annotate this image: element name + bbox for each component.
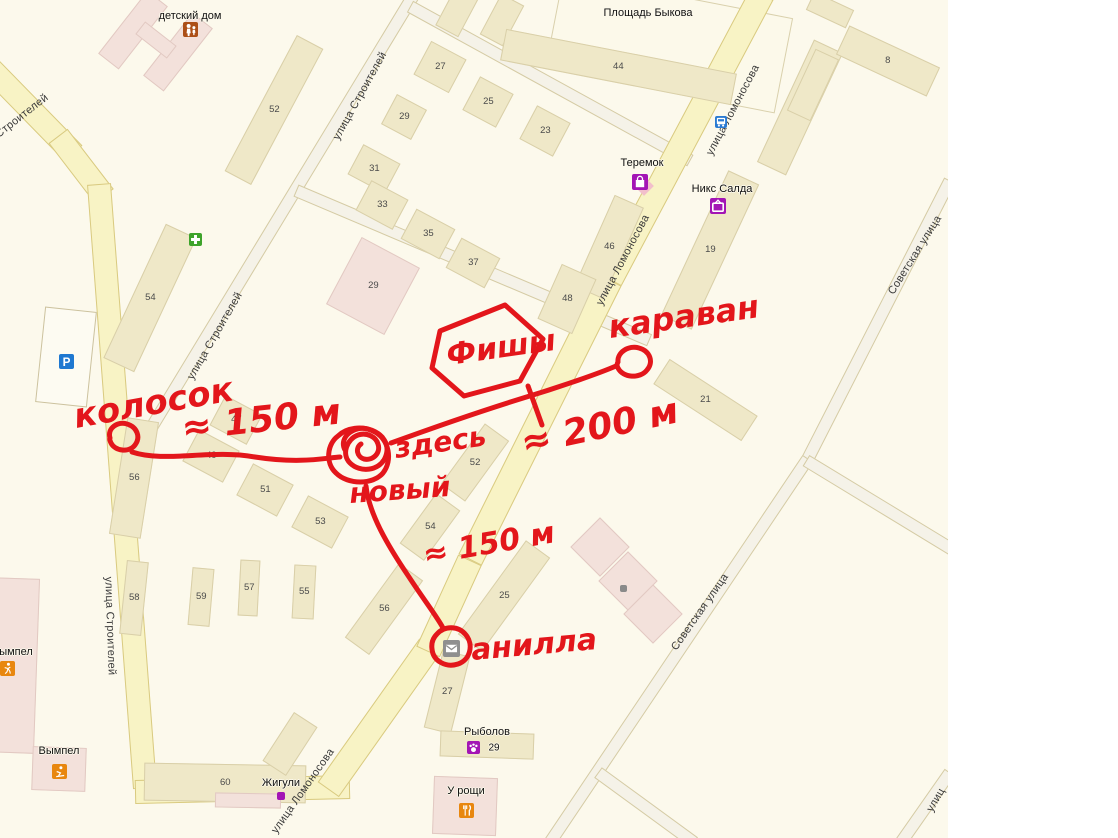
building-number: 59 — [196, 592, 207, 602]
building — [806, 0, 854, 28]
building-number: 56 — [129, 473, 140, 483]
building-number: 27 — [435, 62, 446, 72]
place-label: ымпел — [0, 646, 33, 658]
building-number: 33 — [377, 200, 388, 210]
place-label: 29 — [488, 743, 499, 754]
building-number: 57 — [244, 583, 255, 593]
building — [215, 792, 281, 808]
road-segment — [803, 454, 958, 555]
map-canvas: колосок≈ 150 мФишыкараван≈ 200 мздесьнов… — [0, 0, 1118, 838]
runner-icon — [0, 661, 15, 676]
building-49: 49 — [182, 429, 240, 482]
bag-icon — [632, 174, 648, 190]
building-number: 29 — [399, 112, 410, 122]
building-59: 59 — [188, 567, 215, 627]
parking-icon: P — [59, 354, 74, 369]
road-segment — [896, 768, 956, 838]
place-label: Вымпел — [39, 745, 80, 757]
building-number: 21 — [700, 395, 711, 405]
building-number: 54 — [425, 522, 436, 532]
building-number: 51 — [260, 485, 271, 495]
building-number: 52 — [269, 105, 280, 115]
plus-icon — [189, 233, 202, 246]
building-23: 23 — [519, 105, 570, 156]
building-number: 8 — [885, 56, 890, 66]
building-number: 29 — [368, 281, 379, 291]
street-label: Советская улица — [886, 213, 944, 296]
svg-text:P: P — [62, 356, 70, 369]
road-segment — [594, 767, 698, 838]
building-number: 52 — [470, 457, 481, 467]
building-number: 54 — [145, 293, 156, 303]
building-51: 51 — [236, 463, 294, 516]
tv-icon — [710, 198, 726, 214]
building-number: 58 — [129, 593, 140, 603]
family-icon — [183, 22, 198, 37]
road-segment — [317, 638, 440, 797]
red-drawn-stroke — [391, 366, 616, 443]
building-number: 55 — [299, 587, 310, 597]
building — [262, 712, 317, 776]
building-57: 57 — [238, 560, 261, 617]
red-drawn-stroke — [343, 428, 387, 469]
building-number: 53 — [315, 517, 326, 527]
building-number: 35 — [423, 229, 434, 239]
building-number: 23 — [540, 126, 551, 136]
building-number: 25 — [499, 591, 510, 601]
red-drawn-stroke — [617, 347, 650, 376]
place-label: Рыболов — [464, 726, 510, 738]
street-label: улица Строителей — [331, 50, 389, 142]
street-label: улица Строителей — [185, 290, 245, 382]
place-label: Никс Салда — [692, 183, 753, 195]
building-56: 56 — [345, 563, 423, 655]
building-number: 25 — [483, 97, 494, 107]
dot-icon — [620, 585, 627, 592]
building-number: 27 — [442, 687, 453, 697]
building-29: 29 — [326, 237, 420, 335]
building-25: 25 — [462, 76, 513, 127]
street-label: улица Строителей — [102, 576, 117, 675]
building-number: 44 — [613, 62, 624, 72]
building-number: 37 — [468, 258, 479, 268]
building-number: 19 — [705, 245, 716, 255]
street-label: улиц — [924, 786, 947, 814]
building-54: 54 — [400, 493, 461, 561]
building-number: 48 — [562, 294, 573, 304]
building-27: 27 — [413, 41, 466, 93]
building-53: 53 — [291, 495, 349, 548]
building-8: 8 — [836, 25, 940, 96]
place-label: У рощи — [447, 785, 484, 797]
restaurant-icon — [459, 803, 474, 818]
building-47: 47 — [209, 395, 262, 445]
dot-icon — [277, 792, 285, 800]
building-number: 46 — [604, 242, 615, 252]
building-number: 47 — [231, 415, 242, 425]
mail-icon — [443, 640, 460, 657]
building-number: 31 — [369, 164, 380, 174]
place-label: Площадь Быкова — [604, 7, 693, 19]
red-drawn-stroke — [432, 305, 543, 396]
building-number: 49 — [206, 451, 217, 461]
place-label: Теремок — [621, 157, 664, 169]
red-annotation-text: Фишы — [444, 323, 558, 373]
skier-icon — [52, 764, 67, 779]
building-55: 55 — [292, 564, 317, 619]
building-21: 21 — [653, 359, 757, 441]
offmap-white-area — [948, 0, 1118, 838]
building-29: 29 — [381, 94, 427, 140]
paw-icon — [467, 741, 480, 754]
place-label: Жигули — [262, 777, 300, 789]
red-drawn-stroke — [329, 428, 389, 482]
bus-icon — [715, 116, 727, 128]
place-label: детский дом — [159, 10, 222, 22]
building-number: 56 — [379, 604, 390, 614]
building-number: 60 — [220, 778, 231, 788]
